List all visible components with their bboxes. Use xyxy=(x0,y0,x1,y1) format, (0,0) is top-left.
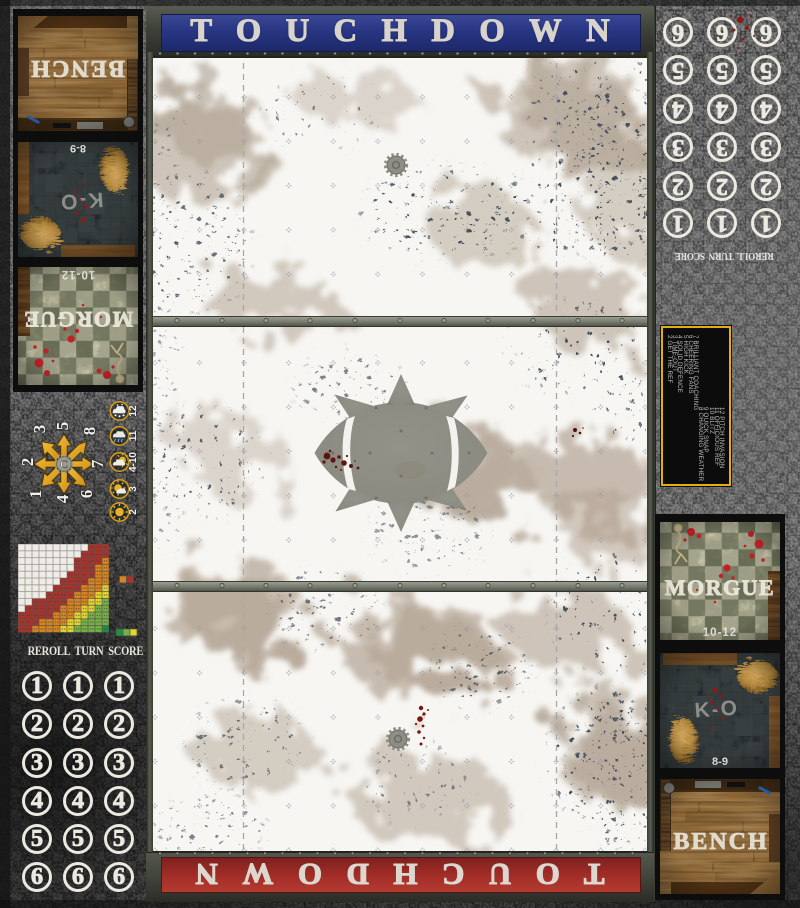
svg-text:C: C xyxy=(60,459,68,471)
